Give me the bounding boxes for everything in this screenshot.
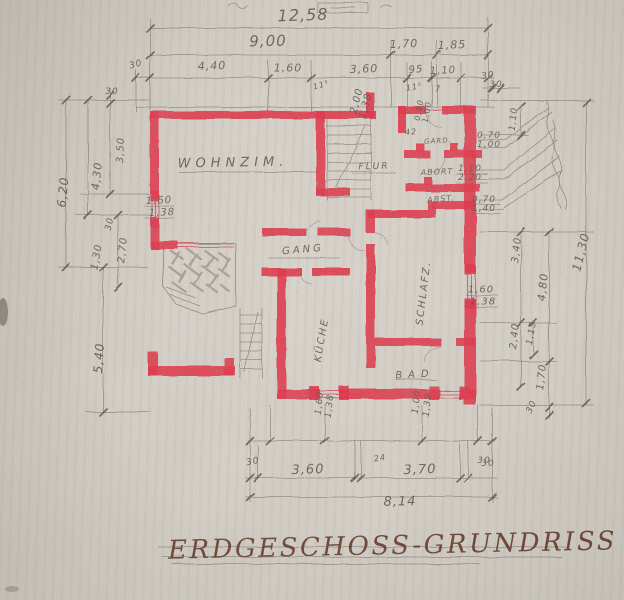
room-label-schlafzimmer: SCHLAFZ.	[415, 260, 434, 326]
dimension-label: 5,40	[91, 342, 107, 374]
dimension-label: 1,15	[525, 320, 539, 345]
room-label-kueche: KÜCHE	[313, 317, 332, 363]
dimension-label: 9,00	[249, 32, 287, 51]
dimension-label: 4,30	[89, 161, 105, 191]
dimension-label: 1,30	[89, 243, 104, 271]
dimension-label: 3,70	[403, 462, 436, 478]
dimension-label: 1,60	[274, 62, 303, 75]
room-label-wohnzimmer: WOHNZIM.	[178, 155, 289, 172]
dimension-label: 2,40	[508, 322, 522, 349]
dimension-label: 30	[245, 456, 260, 469]
dimension-label: 1,38	[324, 394, 336, 419]
room-label-garderobe: GARD.	[424, 136, 452, 145]
dimension-label: 3,40	[510, 236, 524, 263]
dimension-label: 2,20	[458, 173, 482, 183]
floor-plan-sheet: WOHNZIM.FLURGANGSCHLAFZ.KÜCHEBADABORTABS…	[0, 0, 624, 600]
dimension-label: 3,50	[115, 137, 127, 164]
dimension-label: 1,39	[422, 393, 434, 418]
dimension-label: 11⁵	[405, 81, 423, 93]
dimension-label: 3,60	[291, 462, 324, 478]
dimension-label: 1,40	[472, 204, 496, 214]
dimension-label: 1,70	[390, 37, 419, 51]
dimension-label: 30	[477, 456, 490, 466]
dimension-label: 7	[435, 85, 441, 94]
room-label-abstellraum: ABST.	[427, 193, 455, 204]
dimension-label: 1,00	[477, 140, 501, 150]
room-label-gang: GANG	[282, 243, 325, 258]
dimension-label: 30	[104, 216, 117, 231]
dimension-label: 1,10	[430, 65, 457, 77]
dimension-label: 8,14	[383, 494, 416, 510]
dimension-label: 2,70	[116, 236, 130, 263]
dimension-label: 4,80	[535, 272, 551, 302]
dimension-label: 1,70	[535, 363, 549, 390]
dimension-label: 6,20	[54, 176, 71, 208]
dimension-label: 1,60	[146, 195, 173, 207]
dimension-label: 3,60	[350, 62, 379, 76]
dimension-label: 95	[408, 64, 424, 76]
dimension-label: 30	[105, 87, 118, 97]
dimension-label: 11,30	[569, 231, 592, 273]
dimension-label: 1,85	[438, 38, 467, 52]
room-label-flur: FLUR	[358, 161, 389, 172]
dimension-label: 1,38	[149, 207, 176, 219]
dimension-label: 4,40	[198, 59, 227, 73]
dimension-label: 30	[128, 58, 144, 71]
dimension-label: 30	[489, 80, 502, 90]
dimension-label: 1,60	[468, 285, 494, 296]
label-layer: WOHNZIM.FLURGANGSCHLAFZ.KÜCHEBADABORTABS…	[0, 0, 624, 600]
dimension-label: 12,58	[277, 5, 328, 26]
dimension-label: 24	[373, 453, 387, 464]
dimension-label: 1,38	[470, 297, 496, 308]
dimension-label: 30	[525, 399, 540, 415]
dimension-label: 1,10	[508, 107, 520, 132]
dimension-label: 42	[405, 127, 418, 137]
room-label-abort: ABORT	[421, 167, 454, 177]
dimension-label: 11⁵	[312, 79, 330, 92]
room-label-bad: BAD	[395, 368, 435, 381]
